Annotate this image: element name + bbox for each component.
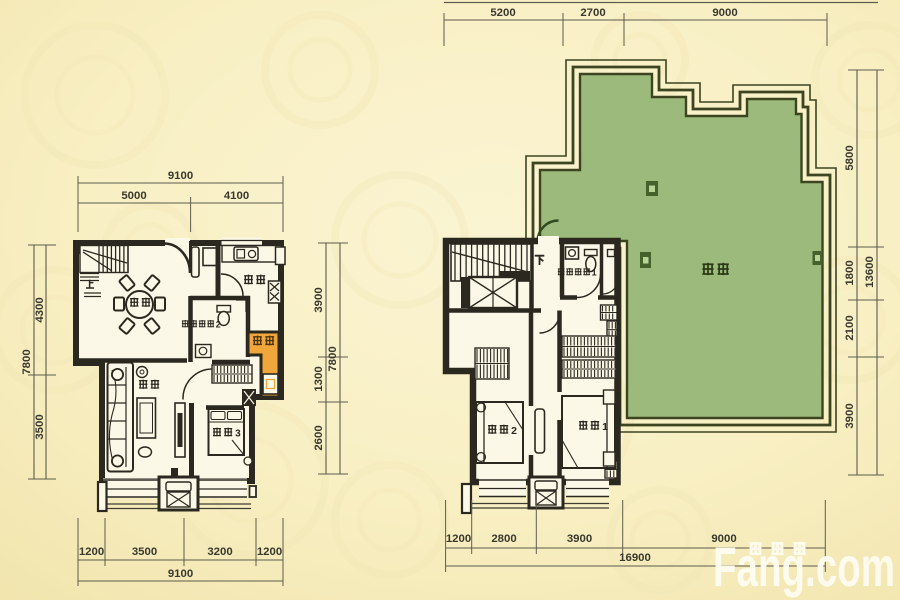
svg-text:3500: 3500 bbox=[132, 546, 157, 558]
svg-text:2: 2 bbox=[511, 425, 517, 437]
svg-text:2700: 2700 bbox=[580, 7, 605, 19]
svg-text:2800: 2800 bbox=[491, 533, 516, 545]
svg-text:2600: 2600 bbox=[313, 425, 325, 450]
svg-text:9100: 9100 bbox=[168, 568, 193, 580]
svg-text:7800: 7800 bbox=[21, 349, 33, 374]
svg-text:1: 1 bbox=[592, 267, 597, 277]
svg-text:1800: 1800 bbox=[844, 260, 856, 285]
svg-text:9100: 9100 bbox=[168, 170, 193, 182]
svg-text:3200: 3200 bbox=[207, 546, 232, 558]
svg-text:3900: 3900 bbox=[844, 403, 856, 428]
svg-text:3500: 3500 bbox=[34, 414, 46, 439]
svg-text:1200: 1200 bbox=[79, 546, 104, 558]
svg-text:1200: 1200 bbox=[446, 533, 471, 545]
svg-text:2100: 2100 bbox=[844, 315, 856, 340]
svg-text:1300: 1300 bbox=[313, 366, 325, 391]
svg-text:3: 3 bbox=[235, 428, 241, 439]
svg-text:16900: 16900 bbox=[619, 552, 651, 564]
svg-text:7800: 7800 bbox=[327, 346, 339, 371]
svg-text:5800: 5800 bbox=[844, 145, 856, 170]
svg-text:5200: 5200 bbox=[490, 7, 515, 19]
svg-text:4300: 4300 bbox=[34, 297, 46, 322]
svg-text:4100: 4100 bbox=[224, 190, 249, 202]
svg-text:1200: 1200 bbox=[257, 546, 282, 558]
svg-text:3900: 3900 bbox=[567, 533, 592, 545]
svg-text:13600: 13600 bbox=[864, 256, 876, 288]
svg-text:Fang.com: Fang.com bbox=[713, 535, 895, 598]
svg-text:3900: 3900 bbox=[313, 287, 325, 312]
svg-text:9000: 9000 bbox=[712, 7, 737, 19]
svg-text:5000: 5000 bbox=[121, 190, 146, 202]
svg-text:1: 1 bbox=[602, 421, 608, 433]
svg-text:2: 2 bbox=[216, 319, 221, 329]
